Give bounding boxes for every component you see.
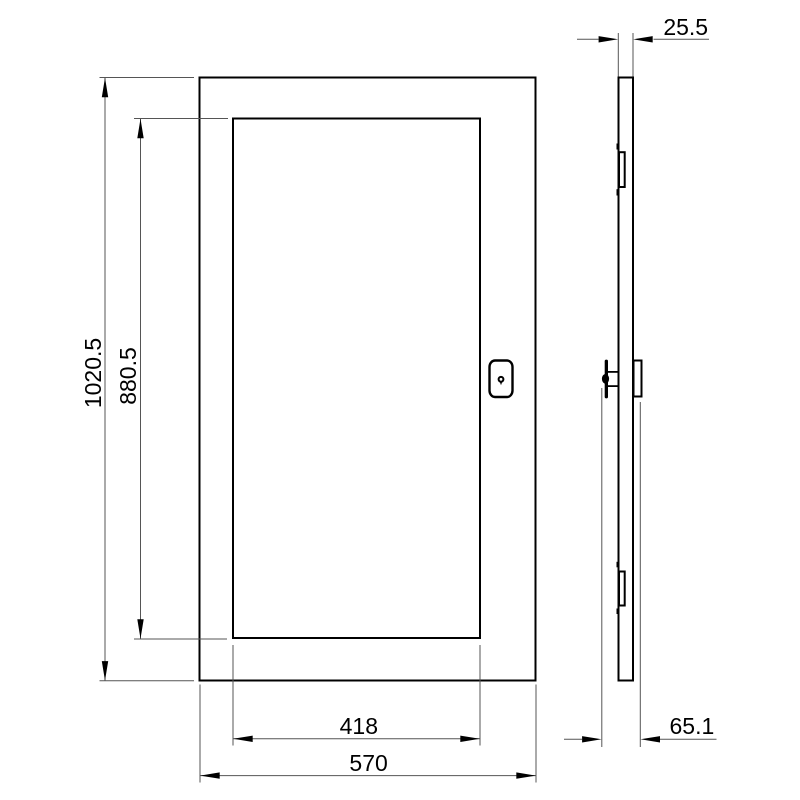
svg-text:65.1: 65.1 xyxy=(670,713,715,739)
svg-text:25.5: 25.5 xyxy=(663,14,708,40)
svg-text:418: 418 xyxy=(340,713,378,739)
svg-text:1020.5: 1020.5 xyxy=(80,338,106,408)
svg-text:880.5: 880.5 xyxy=(115,347,141,405)
svg-text:570: 570 xyxy=(349,750,387,776)
